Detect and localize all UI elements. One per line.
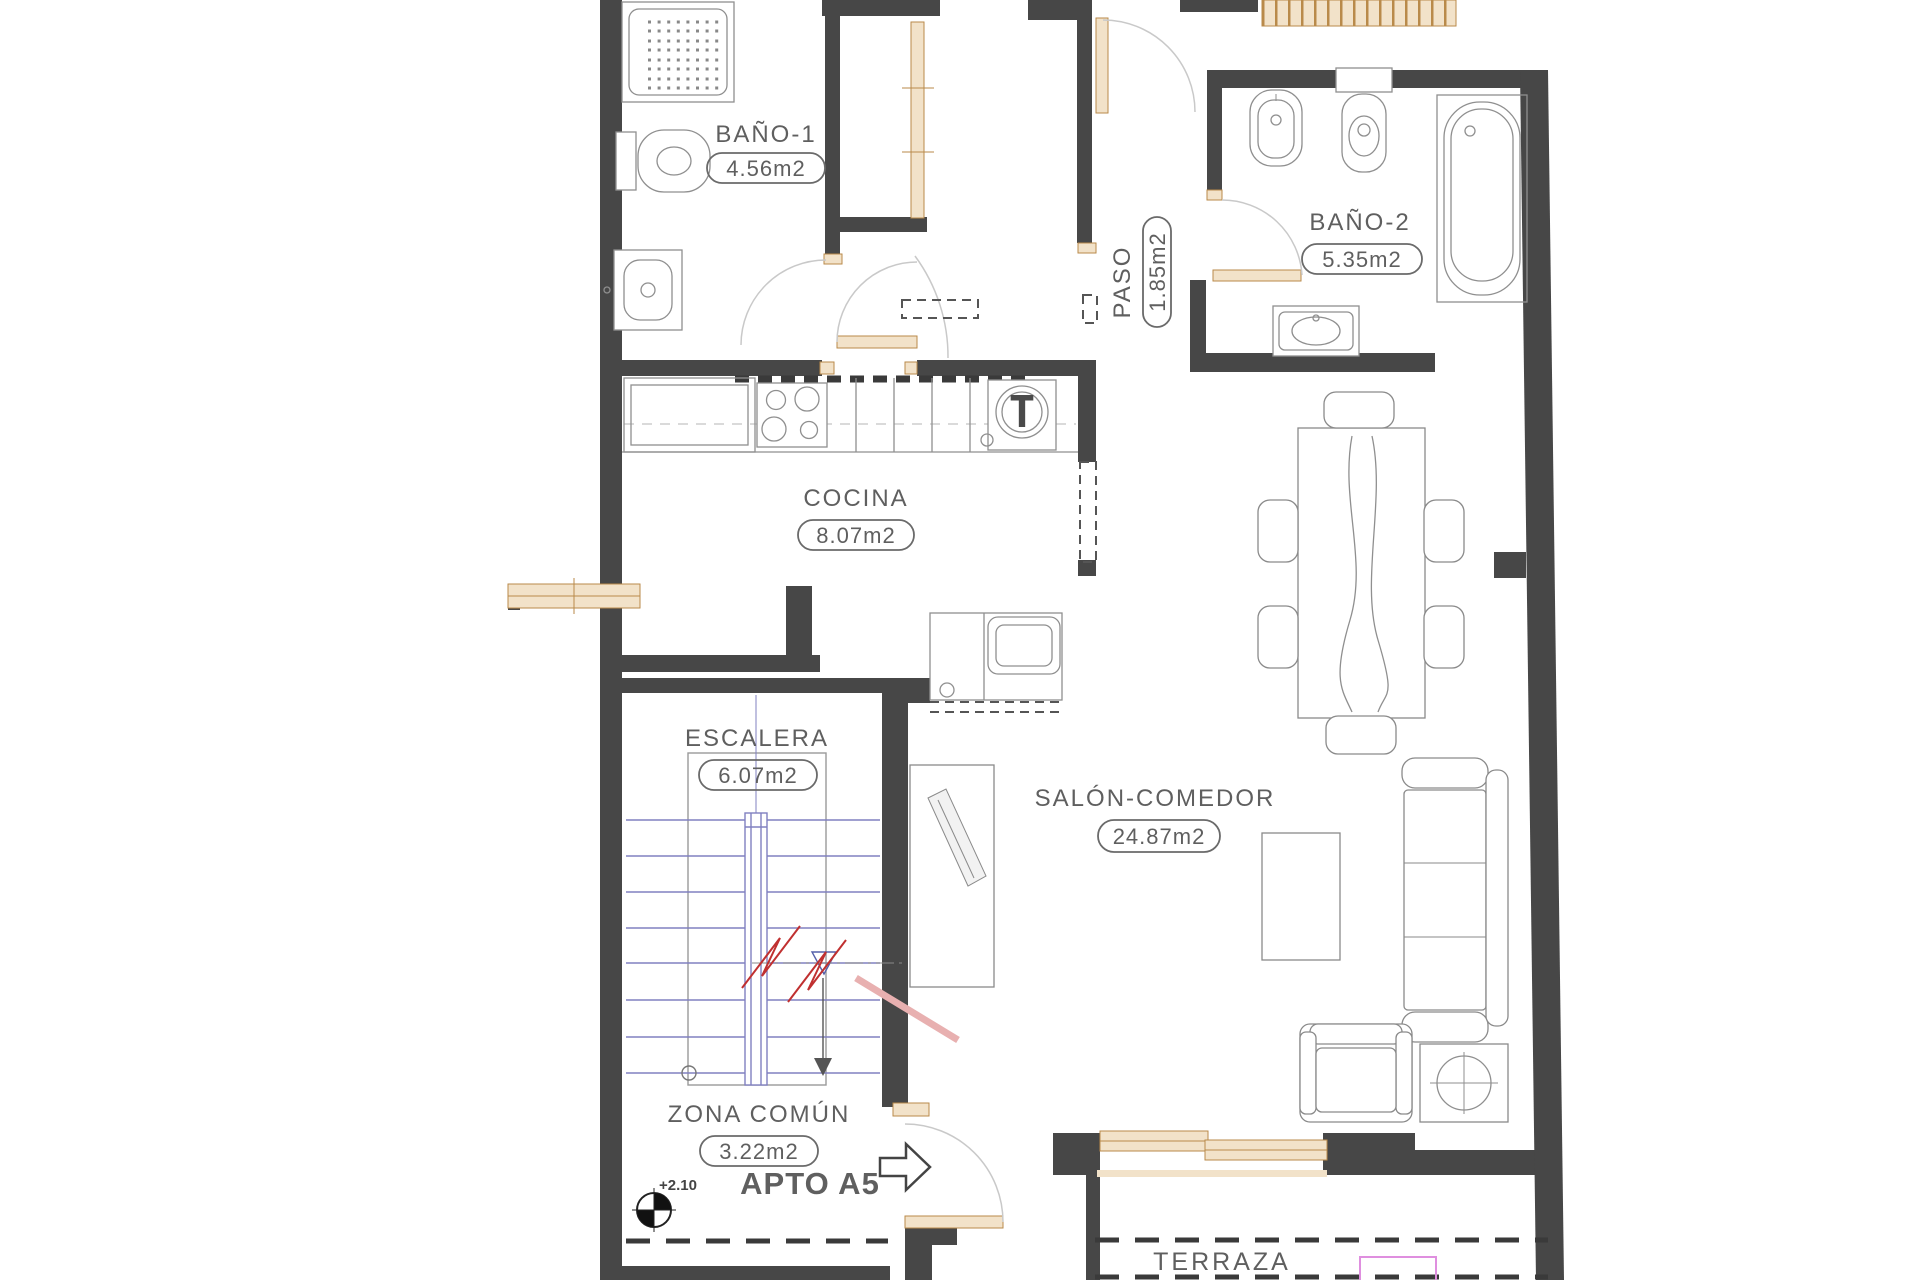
room-name: BAÑO-1 [715, 121, 816, 148]
washbasin [1273, 306, 1359, 356]
room-area: 8.07m2 [816, 523, 895, 548]
floor-plan-canvas: T [0, 0, 1920, 1280]
floor-plan-root: T [0, 0, 1920, 1280]
door-sill [1207, 190, 1222, 200]
annotations: APTO A5 +2.10 [632, 1144, 1436, 1280]
room-name: BAÑO-2 [1309, 209, 1410, 236]
dining-chair [1424, 606, 1464, 668]
hall-door-arc [837, 262, 917, 342]
room-area: 24.87m2 [1113, 824, 1206, 849]
terrace-window [1097, 1131, 1327, 1177]
door-jamb [905, 362, 917, 374]
level-value: +2.10 [659, 1177, 697, 1194]
bedroom-door-arc [1103, 20, 1195, 112]
dining-chair [1258, 606, 1298, 668]
living-room-furniture [910, 392, 1508, 1122]
room-area: 6.07m2 [718, 763, 797, 788]
sofa [1402, 758, 1508, 1042]
entry-arrow-icon [880, 1144, 930, 1190]
sink-unit [930, 613, 1062, 700]
door-sill [1078, 243, 1096, 253]
room-label-salon: SALÓN-COMEDOR 24.87m2 [1035, 785, 1276, 852]
room-area: 1.85m2 [1145, 232, 1170, 311]
toilet [616, 130, 710, 192]
dining-chair [1324, 392, 1394, 428]
water-heater-label: T [1009, 387, 1036, 438]
room-name: PASO [1109, 246, 1136, 319]
stove [757, 383, 827, 447]
closet-door [911, 22, 924, 218]
entry-door-leaf [905, 1216, 1003, 1228]
room-label-bano2: BAÑO-2 5.35m2 [1302, 209, 1422, 274]
level-marker: +2.10 [632, 1177, 697, 1232]
room-label-bano1: BAÑO-1 4.56m2 [707, 121, 825, 183]
dining-chair [1258, 500, 1298, 562]
toilet [1336, 68, 1392, 172]
room-label-paso: PASO 1.85m2 [1109, 217, 1171, 327]
paso-door-arc [915, 256, 948, 358]
dining-chair [1424, 500, 1464, 562]
dining-chair [1326, 716, 1396, 754]
dining-table [1298, 428, 1425, 718]
bathroom2-door-leaf [1213, 270, 1301, 281]
room-label-cocina: COCINA 8.07m2 [798, 485, 914, 550]
shower-tray [622, 2, 734, 102]
room-area: 4.56m2 [726, 156, 805, 181]
bedroom-door-leaf [1096, 18, 1108, 113]
coffee-table [1262, 833, 1340, 960]
bathroom1-door-arc [741, 260, 826, 345]
washbasin [604, 250, 682, 330]
bidet [1250, 90, 1302, 166]
door-sill [824, 254, 842, 264]
room-name: ESCALERA [685, 725, 829, 752]
fridge-cabinet [624, 378, 755, 452]
stairs [626, 695, 906, 1085]
room-name: COCINA [803, 485, 908, 512]
side-table [1420, 1044, 1508, 1122]
room-area: 5.35m2 [1322, 247, 1401, 272]
water-heater: T [981, 380, 1056, 450]
bathroom1-fixtures [604, 2, 734, 330]
armchair [1300, 1024, 1412, 1122]
hall-door-leaf [837, 336, 917, 348]
tv-unit [910, 765, 994, 987]
door-sill [893, 1103, 929, 1116]
room-label-zona-comun: ZONA COMÚN 3.22m2 [668, 1101, 851, 1166]
room-label-terraza: TERRAZA [1153, 1248, 1291, 1276]
room-name: ZONA COMÚN [668, 1101, 851, 1128]
apartment-label: APTO A5 [740, 1166, 880, 1201]
wardrobe-shelves [1262, 0, 1456, 26]
door-jamb [820, 362, 834, 374]
bathroom2-door-arc [1222, 200, 1302, 275]
room-name: SALÓN-COMEDOR [1035, 785, 1276, 812]
room-area: 3.22m2 [719, 1139, 798, 1164]
bathtub [1437, 95, 1527, 302]
room-label-escalera: ESCALERA 6.07m2 [685, 725, 829, 790]
